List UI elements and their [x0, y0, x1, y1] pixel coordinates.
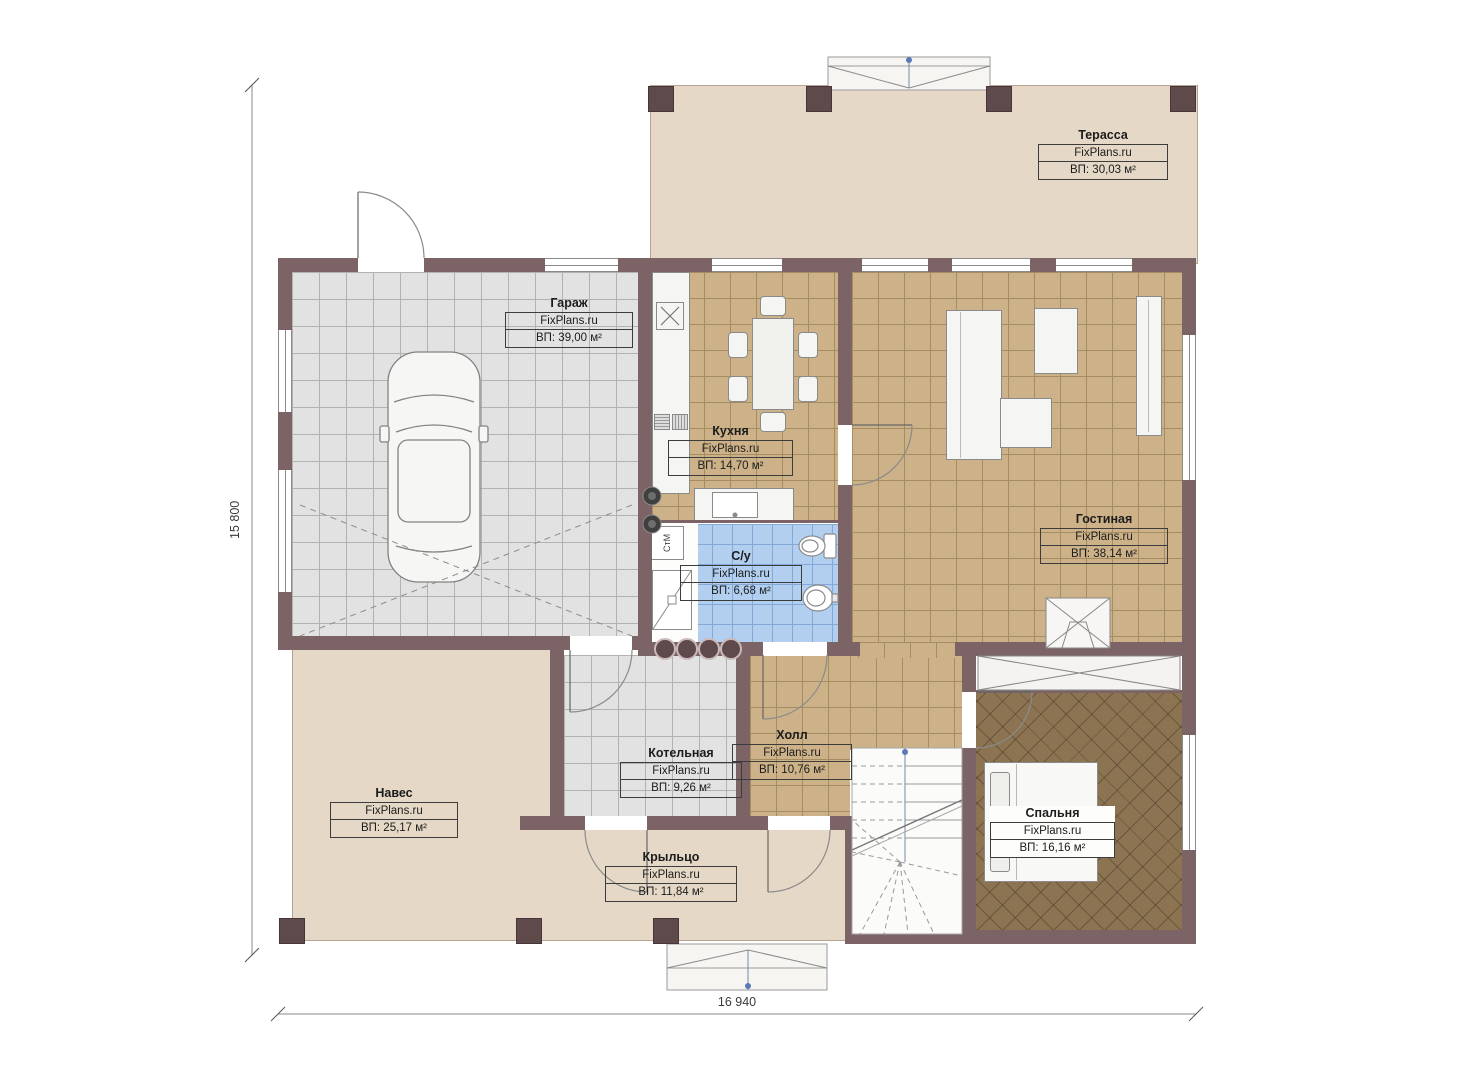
watermark: FixPlans.ru	[1041, 529, 1167, 546]
wall	[278, 636, 570, 650]
room-name: Крыльцо	[605, 850, 737, 864]
window	[862, 258, 928, 272]
window	[545, 258, 618, 272]
kitchen-sink	[712, 492, 758, 518]
living-floor	[852, 272, 1182, 642]
wall	[618, 258, 712, 272]
room-label-living: Гостиная FixPlans.ru ВП: 38,14 м²	[1040, 512, 1168, 564]
wall-thin	[652, 520, 838, 523]
wall	[278, 412, 292, 470]
watermark: FixPlans.ru	[331, 803, 457, 820]
stair-opening-floor	[858, 642, 957, 658]
washing-machine-label: СтМ	[651, 527, 683, 559]
floor-plan: СтМ	[0, 0, 1474, 1080]
room-name: Гостиная	[1040, 512, 1168, 526]
wall	[278, 258, 358, 272]
watermark: FixPlans.ru	[621, 763, 741, 780]
column	[806, 86, 832, 112]
column	[648, 86, 674, 112]
room-label-terrace: Терасса FixPlans.ru ВП: 30,03 м²	[1038, 128, 1168, 180]
staircase	[852, 748, 962, 934]
room-area: ВП: 30,03 м²	[1039, 162, 1167, 178]
room-area: ВП: 10,76 м²	[733, 762, 851, 778]
wall	[1030, 258, 1056, 272]
wall	[962, 748, 976, 930]
wall	[1132, 258, 1196, 272]
sofa-chaise	[1000, 398, 1052, 448]
room-label-bedroom: Спальня FixPlans.ru ВП: 16,16 м²	[990, 806, 1115, 858]
dining-table	[752, 318, 794, 410]
wall	[838, 272, 852, 425]
room-area: ВП: 9,26 м²	[621, 780, 741, 796]
wall	[1182, 272, 1196, 335]
room-area: ВП: 16,16 м²	[991, 840, 1114, 856]
window	[1182, 735, 1196, 850]
wall	[928, 258, 952, 272]
window	[278, 330, 292, 412]
window	[1056, 258, 1132, 272]
room-area: ВП: 14,70 м²	[669, 458, 792, 474]
door-opening	[763, 642, 827, 656]
wall	[845, 816, 858, 930]
wall-thin	[976, 690, 1182, 693]
column	[986, 86, 1012, 112]
wall	[647, 816, 768, 830]
window	[952, 258, 1030, 272]
wardrobe	[978, 656, 1180, 690]
room-area: ВП: 39,00 м²	[506, 330, 632, 346]
room-area: ВП: 38,14 м²	[1041, 546, 1167, 562]
column	[653, 918, 679, 944]
room-area: ВП: 6,68 м²	[681, 583, 801, 599]
wall	[782, 258, 862, 272]
sofa-back-line	[960, 312, 961, 458]
room-label-porch: Крыльцо FixPlans.ru ВП: 11,84 м²	[605, 850, 737, 902]
radiator-line	[1148, 300, 1149, 432]
room-name: С/у	[680, 549, 802, 563]
column	[1170, 86, 1196, 112]
door-opening	[962, 692, 976, 748]
wall	[278, 272, 292, 330]
kitchen-sink-top-icon	[656, 302, 684, 330]
room-label-bathroom: С/у FixPlans.ru ВП: 6,68 м²	[680, 549, 802, 601]
chair	[728, 376, 748, 402]
watermark: FixPlans.ru	[669, 441, 792, 458]
room-area: ВП: 11,84 м²	[606, 884, 736, 900]
room-name: Холл	[732, 728, 852, 742]
column	[279, 918, 305, 944]
wall	[1182, 642, 1196, 735]
wall	[955, 642, 1196, 656]
watermark: FixPlans.ru	[733, 745, 851, 762]
column	[516, 918, 542, 944]
wall	[827, 642, 860, 656]
room-label-canopy: Навес FixPlans.ru ВП: 25,17 м²	[330, 786, 458, 838]
watermark: FixPlans.ru	[991, 823, 1114, 840]
chair	[728, 332, 748, 358]
dimension-height: 15 800	[228, 470, 242, 570]
door-opening	[768, 816, 830, 830]
door-opening	[358, 258, 424, 272]
dimension-line-vertical	[245, 78, 259, 962]
coffee-table	[1034, 308, 1078, 374]
room-label-kitchen: Кухня FixPlans.ru ВП: 14,70 м²	[668, 424, 793, 476]
window	[712, 258, 782, 272]
entry-steps-bottom	[667, 944, 827, 990]
wall	[1182, 850, 1196, 944]
room-label-garage: Гараж FixPlans.ru ВП: 39,00 м²	[505, 296, 633, 348]
door-opening	[570, 636, 632, 650]
wall	[838, 485, 852, 642]
window	[1182, 335, 1196, 480]
watermark: FixPlans.ru	[681, 566, 801, 583]
wall	[638, 272, 652, 655]
room-name: Навес	[330, 786, 458, 800]
wall	[845, 930, 1196, 944]
watermark: FixPlans.ru	[606, 867, 736, 884]
room-name: Котельная	[620, 746, 742, 760]
door-arc	[358, 192, 424, 258]
wall	[962, 655, 976, 692]
door-opening	[838, 425, 852, 485]
room-name: Гараж	[505, 296, 633, 310]
wall	[520, 816, 585, 830]
chair	[798, 332, 818, 358]
wall	[1182, 480, 1196, 642]
watermark: FixPlans.ru	[1039, 145, 1167, 162]
dimension-width: 16 940	[687, 995, 787, 1009]
room-label-hall: Холл FixPlans.ru ВП: 10,76 м²	[732, 728, 852, 780]
chair	[798, 376, 818, 402]
wall	[424, 258, 545, 272]
sofa	[946, 310, 1002, 460]
washing-machine: СтМ	[650, 526, 684, 560]
wall	[550, 650, 564, 830]
watermark: FixPlans.ru	[506, 313, 632, 330]
dimension-line-horizontal	[271, 1007, 1203, 1021]
room-name: Терасса	[1038, 128, 1168, 142]
chair	[760, 296, 786, 316]
room-label-boiler: Котельная FixPlans.ru ВП: 9,26 м²	[620, 746, 742, 798]
hall-floor-ext	[850, 655, 962, 750]
radiator	[1136, 296, 1162, 436]
room-name: Кухня	[668, 424, 793, 438]
room-area: ВП: 25,17 м²	[331, 820, 457, 836]
window	[278, 470, 292, 592]
room-name: Спальня	[990, 806, 1115, 820]
door-opening	[585, 816, 647, 830]
wall	[638, 642, 763, 656]
